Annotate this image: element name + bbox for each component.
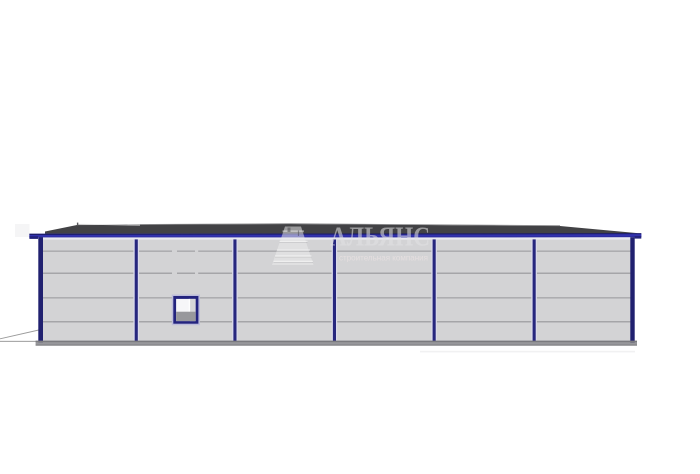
svg-text:строительная компания: строительная компания — [339, 253, 428, 262]
svg-text:АЛЬЯНС: АЛЬЯНС — [330, 222, 430, 252]
